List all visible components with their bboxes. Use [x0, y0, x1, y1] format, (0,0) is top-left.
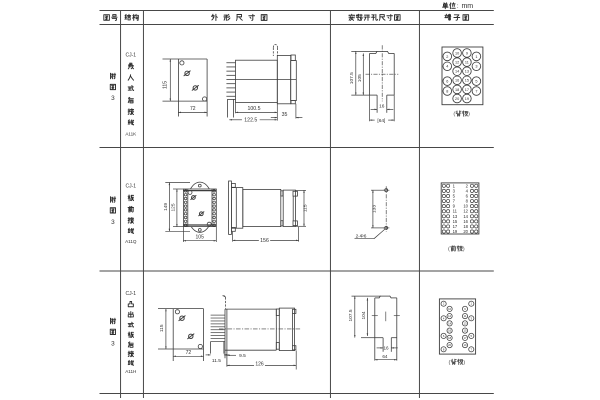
- svg-text:107.5: 107.5: [348, 309, 354, 321]
- svg-text:19: 19: [465, 97, 469, 101]
- svg-text:(: (: [449, 360, 451, 366]
- svg-text:): ): [463, 246, 465, 252]
- svg-text:11: 11: [464, 314, 467, 318]
- svg-text:105: 105: [196, 234, 205, 240]
- svg-text:16: 16: [455, 79, 459, 83]
- svg-text:6: 6: [446, 79, 448, 83]
- svg-text:4: 4: [446, 65, 448, 69]
- svg-text:16: 16: [383, 346, 389, 351]
- svg-text:20: 20: [463, 229, 468, 234]
- svg-text:3: 3: [111, 219, 115, 226]
- svg-text:mm: mm: [461, 3, 473, 10]
- svg-text:115: 115: [163, 81, 169, 89]
- svg-text:11.5: 11.5: [212, 358, 221, 364]
- svg-text:CJ-1: CJ-1: [126, 291, 137, 297]
- svg-text:): ): [468, 112, 470, 118]
- svg-text:CJ-1: CJ-1: [126, 52, 137, 58]
- svg-text:12: 12: [455, 60, 459, 64]
- svg-text:7: 7: [475, 89, 477, 93]
- svg-text:3: 3: [475, 65, 477, 69]
- svg-text:14: 14: [448, 321, 451, 325]
- svg-text:CJ-1: CJ-1: [126, 184, 137, 190]
- svg-text:100.5: 100.5: [248, 106, 261, 112]
- svg-text:17: 17: [464, 336, 467, 340]
- svg-text:35: 35: [282, 112, 288, 118]
- svg-text:105: 105: [357, 74, 363, 82]
- svg-text:13: 13: [464, 321, 467, 325]
- svg-text:3: 3: [111, 95, 115, 102]
- svg-text:149: 149: [163, 203, 169, 211]
- svg-text:A11H: A11H: [125, 369, 136, 374]
- svg-text:1: 1: [475, 55, 477, 59]
- svg-text:156: 156: [260, 238, 269, 244]
- svg-text:): ): [463, 360, 465, 366]
- svg-text:126: 126: [255, 362, 264, 368]
- svg-text:72: 72: [190, 106, 196, 112]
- svg-text:115: 115: [159, 324, 165, 332]
- svg-text:[64]: [64]: [377, 118, 385, 124]
- svg-text:10: 10: [455, 51, 459, 55]
- svg-text:16: 16: [379, 103, 385, 109]
- svg-text:5: 5: [475, 79, 477, 83]
- svg-text:104: 104: [361, 311, 367, 319]
- svg-text:11: 11: [465, 60, 469, 64]
- svg-text:3: 3: [111, 341, 115, 348]
- svg-text:16: 16: [448, 329, 451, 333]
- svg-text:17: 17: [465, 88, 469, 92]
- svg-text:15: 15: [464, 329, 467, 333]
- svg-text:19: 19: [464, 343, 467, 347]
- svg-text:15: 15: [465, 79, 469, 83]
- svg-text:10: 10: [448, 307, 451, 311]
- svg-text::: :: [457, 3, 459, 10]
- svg-text:18: 18: [455, 88, 459, 92]
- svg-text:14: 14: [455, 70, 459, 74]
- svg-text:(: (: [453, 112, 455, 118]
- svg-text:2: 2: [446, 55, 448, 59]
- svg-text:9.5: 9.5: [239, 353, 246, 359]
- svg-text:115: 115: [303, 204, 309, 212]
- svg-text:64: 64: [382, 354, 388, 359]
- svg-text:9: 9: [466, 51, 468, 55]
- svg-text:20: 20: [455, 97, 459, 101]
- svg-text:19: 19: [453, 229, 458, 234]
- svg-text:122.5: 122.5: [244, 118, 257, 124]
- svg-text:133: 133: [372, 205, 378, 213]
- svg-text:72: 72: [186, 350, 192, 356]
- svg-text:A11K: A11K: [125, 131, 137, 136]
- svg-text:13: 13: [465, 70, 469, 74]
- svg-text:18: 18: [448, 336, 451, 340]
- svg-text:125: 125: [171, 203, 177, 211]
- svg-text:20: 20: [448, 343, 451, 347]
- svg-text:A11Q: A11Q: [125, 239, 137, 244]
- svg-text:12: 12: [448, 314, 451, 318]
- svg-text:107.5: 107.5: [349, 72, 355, 84]
- svg-text:8: 8: [446, 89, 448, 93]
- svg-text:(: (: [448, 246, 450, 252]
